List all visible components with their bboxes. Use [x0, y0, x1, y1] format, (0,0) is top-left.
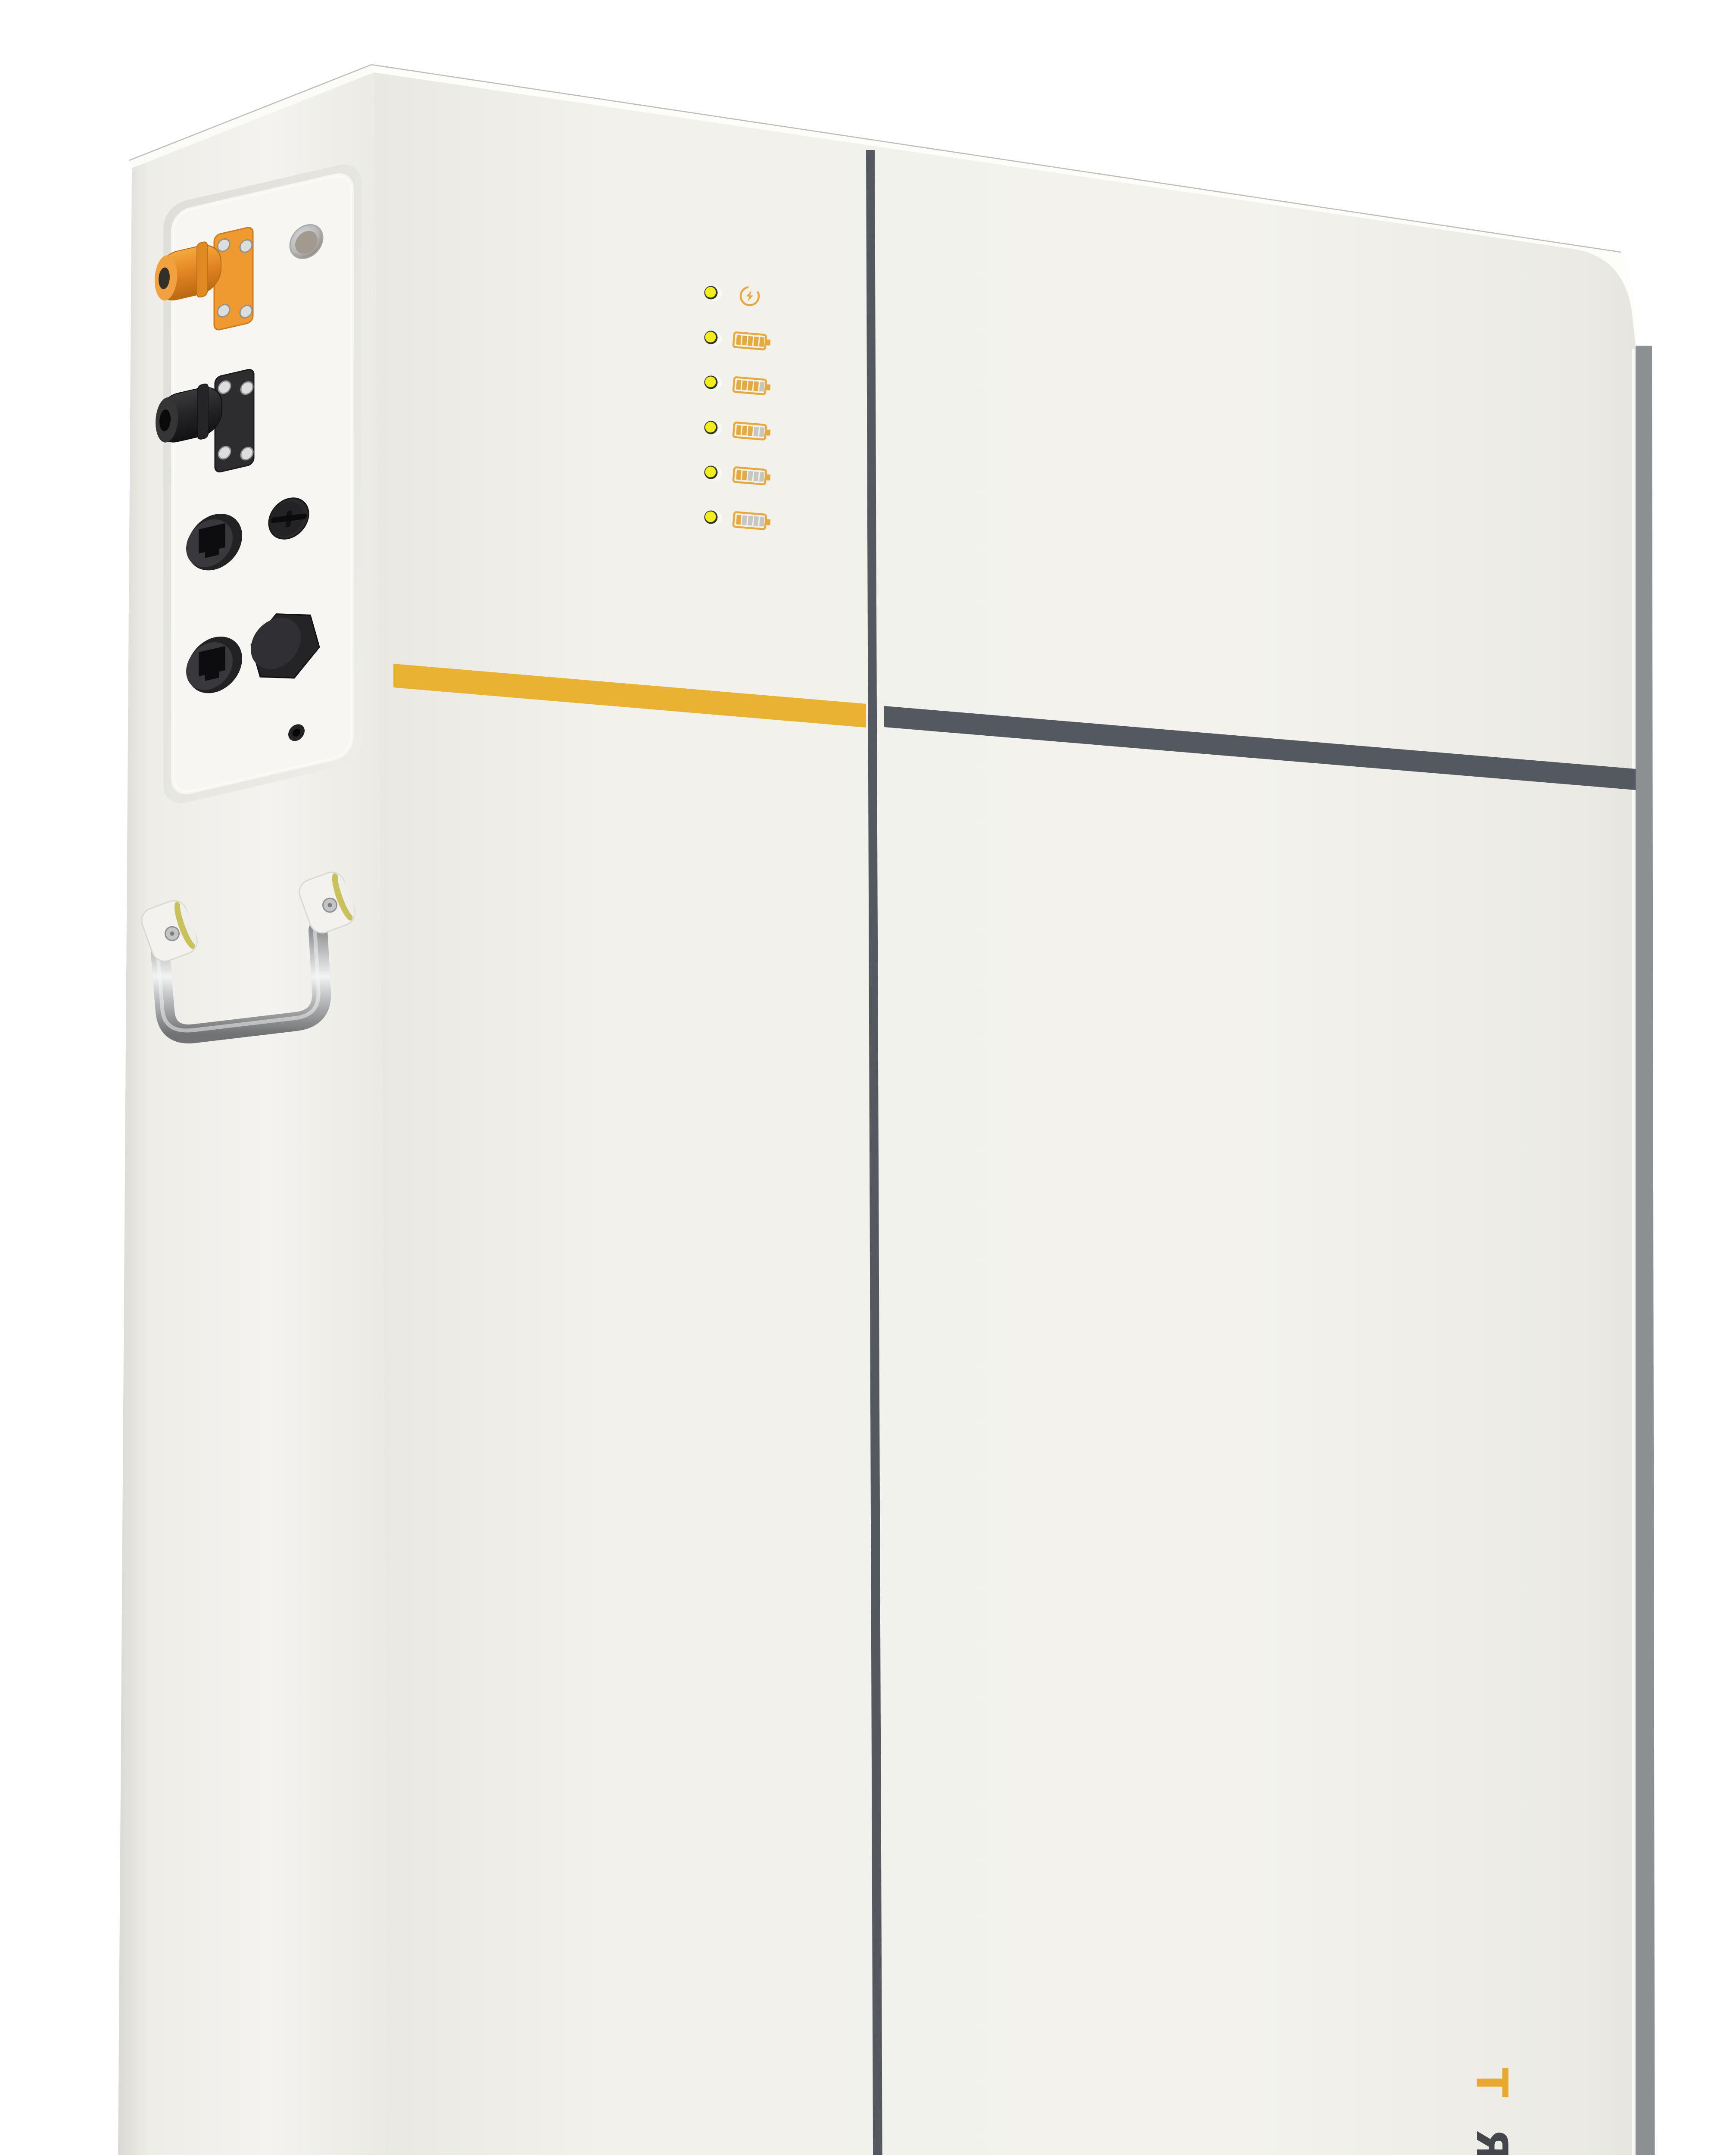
battery-cabinet-render — [0, 0, 1736, 2155]
brand-logo-triple: TЯIPLƎ — [1470, 2068, 1513, 2155]
brand-letters-riple: ЯIPLƎ — [1467, 2128, 1517, 2155]
brand-letter-t: T — [1467, 2068, 1517, 2128]
right-side-face — [1636, 346, 1655, 2155]
product-render-stage: TЯIPLƎ POWER — [0, 0, 1736, 2155]
front-face — [374, 72, 1636, 2155]
side-connector-panel — [155, 160, 362, 810]
